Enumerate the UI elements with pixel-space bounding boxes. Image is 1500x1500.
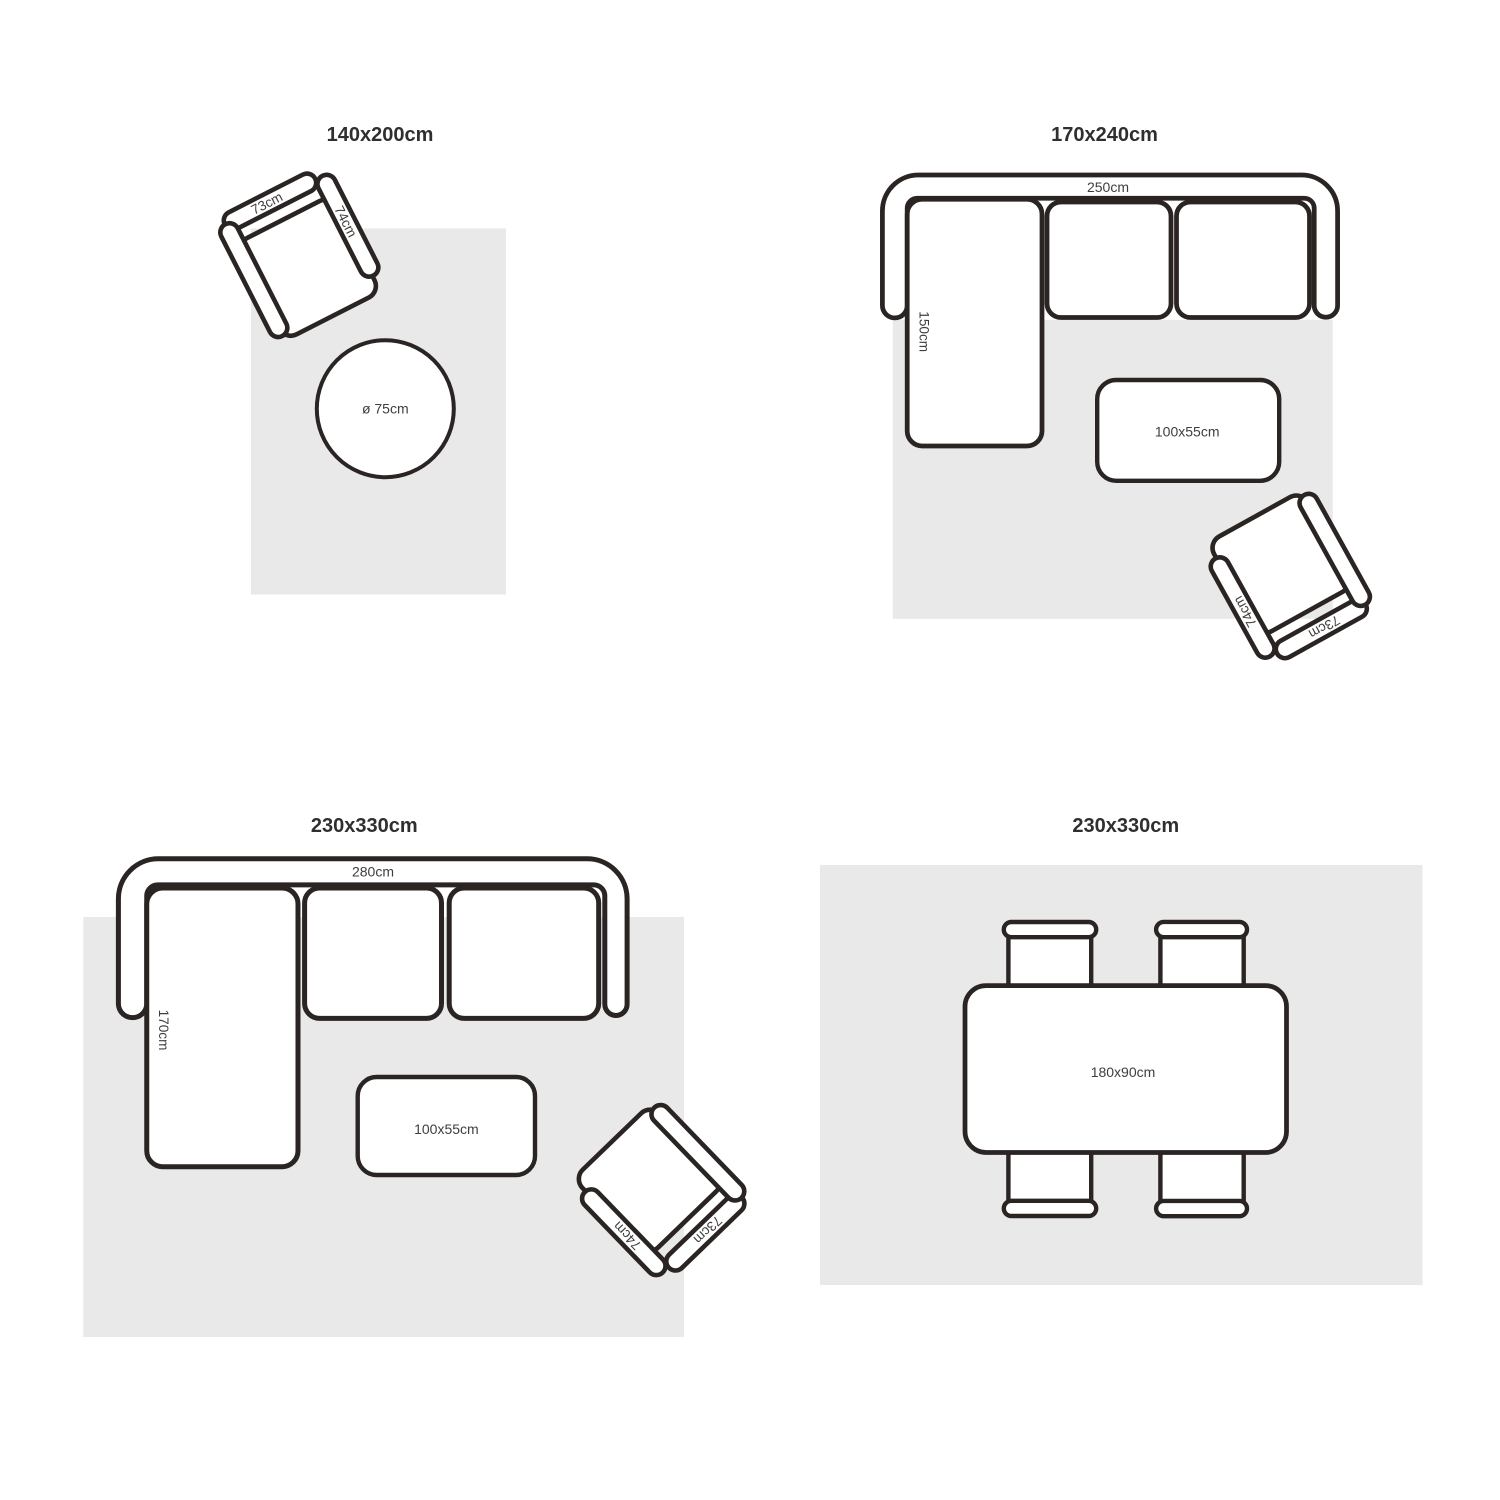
svg-text:230x330cm: 230x330cm [311, 815, 418, 837]
svg-text:250cm: 250cm [1087, 179, 1129, 195]
svg-text:140x200cm: 140x200cm [327, 124, 434, 146]
svg-text:100x55cm: 100x55cm [414, 1121, 479, 1137]
svg-text:ø 75cm: ø 75cm [362, 400, 409, 416]
svg-text:280cm: 280cm [352, 864, 394, 880]
svg-text:150cm: 150cm [916, 311, 931, 352]
svg-text:100x55cm: 100x55cm [1155, 424, 1220, 440]
svg-text:170x240cm: 170x240cm [1051, 124, 1158, 146]
svg-text:170cm: 170cm [156, 1010, 171, 1051]
svg-text:230x330cm: 230x330cm [1072, 815, 1179, 837]
svg-text:180x90cm: 180x90cm [1091, 1064, 1156, 1080]
